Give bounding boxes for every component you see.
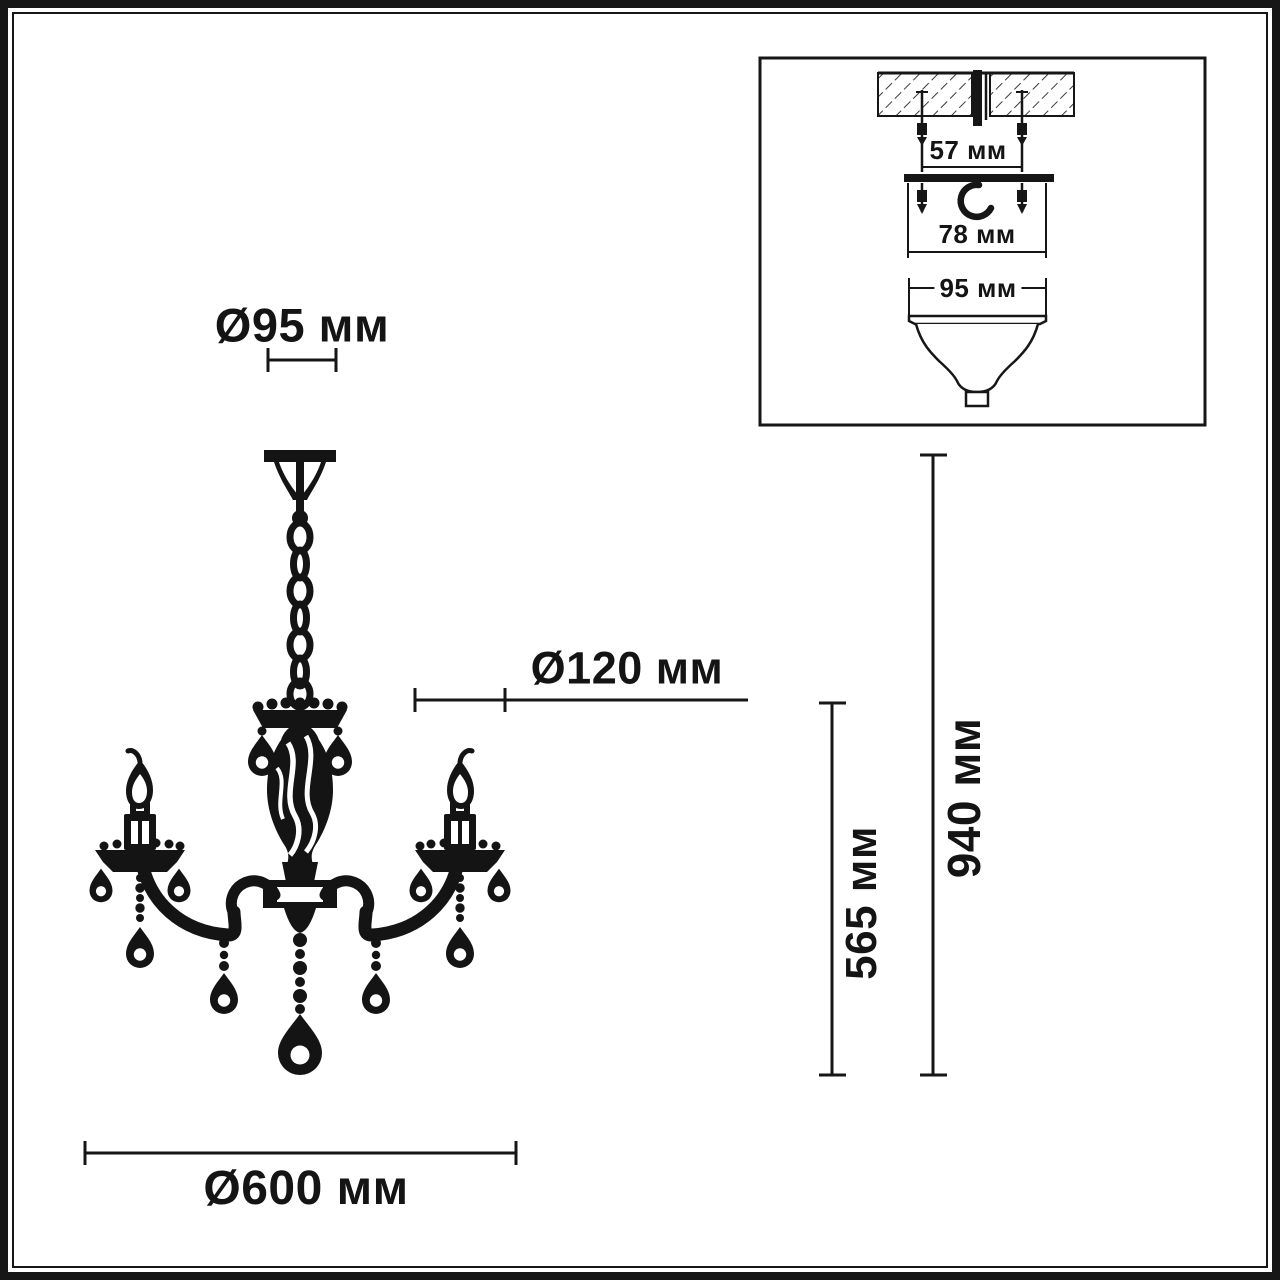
label-anchor-spacing: 57 мм [929, 137, 1006, 163]
chandelier-center-drop [278, 933, 322, 1075]
dimension-lines [85, 348, 947, 1165]
technical-drawing-page: Ø95 мм Ø120 мм Ø600 мм 565 мм 940 мм 57 … [0, 0, 1280, 1280]
label-canopy-width: 95 мм [934, 275, 1021, 301]
chandelier-silhouette [90, 450, 511, 1075]
label-column-diameter: Ø120 мм [531, 646, 724, 691]
dim-canopy-diameter [268, 348, 336, 372]
label-body-height: 565 мм [840, 826, 884, 980]
label-total-height: 940 мм [941, 718, 987, 879]
inset-canopy-bell [909, 316, 1046, 406]
chandelier-baluster [267, 724, 333, 866]
chandelier-arm-left [90, 751, 275, 1014]
inset-center-screw [973, 70, 986, 126]
chandelier-chain [290, 523, 310, 707]
chandelier-arm-right [325, 751, 510, 1014]
label-fixture-diameter: Ø600 мм [203, 1165, 408, 1213]
label-canopy-diameter: Ø95 мм [215, 302, 389, 349]
inset-hook [961, 185, 991, 217]
diagram-canvas [0, 0, 1280, 1280]
chandelier-canopy [264, 450, 336, 526]
label-bracket-width: 78 мм [933, 221, 1020, 247]
inset-mounting-bar [904, 174, 1054, 182]
